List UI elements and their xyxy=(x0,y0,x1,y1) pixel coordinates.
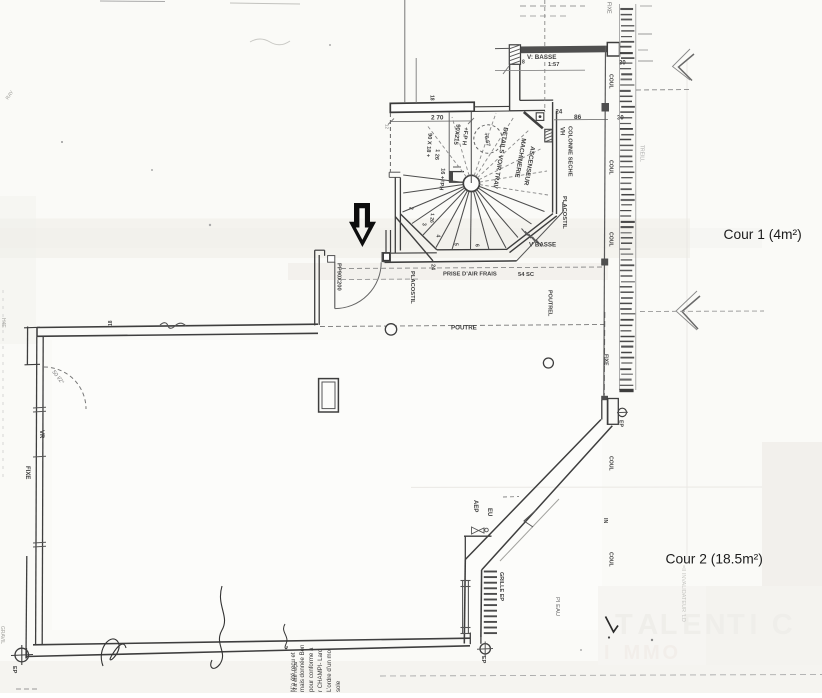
svg-text:8: 8 xyxy=(522,60,525,66)
svg-text:=II INVALIDATEUR ’LD: =II INVALIDATEUR ’LD xyxy=(680,565,686,622)
svg-text:FIXE: FIXE xyxy=(24,466,30,479)
svg-text:1 26: 1 26 xyxy=(433,149,440,160)
svg-text:COUL: COUL xyxy=(608,232,614,248)
svg-text:1 26: 1 26 xyxy=(428,213,435,223)
svg-text:COUL: COUL xyxy=(608,552,614,568)
svg-text:r CHAMPI- Lard: r CHAMPI- Lard xyxy=(317,649,324,692)
svg-text:PI EAU: PI EAU xyxy=(554,597,560,616)
svg-text:24: 24 xyxy=(556,110,563,116)
svg-text:COLONNE SECHE: COLONNE SECHE xyxy=(567,126,573,177)
svg-text:54 SC: 54 SC xyxy=(518,272,535,278)
svg-text:N’a été reçu: N’a été reçu xyxy=(293,662,299,692)
svg-text:1:57: 1:57 xyxy=(548,62,559,68)
svg-text:30: 30 xyxy=(617,116,624,122)
svg-text:L’ordre d’un mo: L’ordre d’un mo xyxy=(326,649,333,692)
svg-text:18: 18 xyxy=(429,95,435,101)
svg-text:AEP: AEP xyxy=(472,500,478,512)
svg-text:3: 3 xyxy=(421,223,427,226)
svg-text:L: L xyxy=(660,609,678,641)
svg-text:I: I xyxy=(749,609,757,641)
svg-text:A: A xyxy=(637,609,658,641)
svg-text:GRAVIL: GRAVIL xyxy=(0,626,5,644)
svg-text:5: 5 xyxy=(453,243,459,246)
svg-text:EU: EU xyxy=(486,508,492,516)
svg-text:sole: sole xyxy=(335,680,342,692)
svg-text:PLACOSTIL: PLACOSTIL xyxy=(561,196,567,229)
svg-text:4: 4 xyxy=(435,235,441,238)
svg-text:86: 86 xyxy=(574,114,582,121)
svg-text:O: O xyxy=(663,642,679,664)
svg-text:EP: EP xyxy=(11,666,17,674)
svg-text:COUL: COUL xyxy=(608,160,614,176)
svg-text:mais donnée Bon: mais donnée Bon xyxy=(299,645,306,692)
svg-text:M: M xyxy=(643,642,660,664)
svg-text:H4E: H4E xyxy=(0,318,6,328)
svg-text:IN: IN xyxy=(602,518,608,523)
svg-text:I: I xyxy=(604,642,610,664)
svg-text:M: M xyxy=(624,642,641,664)
svg-text:2: 2 xyxy=(408,207,414,210)
svg-text:POUTREL: POUTREL xyxy=(547,290,553,317)
svg-text:N: N xyxy=(705,609,726,641)
svg-text:PRISE D’AIR FRAIS: PRISE D’AIR FRAIS xyxy=(443,272,497,278)
svg-text:COUL: COUL xyxy=(608,456,614,472)
svg-text:EP: EP xyxy=(618,420,624,427)
svg-text:FIXE: FIXE xyxy=(603,354,609,366)
svg-text:12: 12 xyxy=(385,124,390,130)
svg-text:COUL: COUL xyxy=(608,74,614,90)
svg-text:T: T xyxy=(727,609,745,641)
svg-text:C: C xyxy=(772,609,793,641)
svg-text:PP90X200: PP90X200 xyxy=(336,263,342,291)
svg-text:6: 6 xyxy=(474,244,480,247)
svg-text:TREILL: TREILL xyxy=(639,145,645,162)
svg-text:PLACOSTIL: PLACOSTIL xyxy=(409,271,415,304)
svg-text:VH: VH xyxy=(559,127,565,135)
svg-text:24: 24 xyxy=(430,264,436,271)
svg-text:18: 18 xyxy=(108,320,114,326)
svg-text:GRILLE EP: GRILLE EP xyxy=(498,572,504,601)
svg-text:Cour 2 (18.5m²): Cour 2 (18.5m²) xyxy=(666,552,763,567)
svg-text:EP: EP xyxy=(480,656,486,664)
svg-text:VR: VR xyxy=(38,430,44,439)
svg-text:V BASSE: V BASSE xyxy=(529,242,556,249)
svg-text:pour conforme à: pour conforme à xyxy=(308,647,315,692)
svg-text:V: BASSE: V: BASSE xyxy=(527,54,556,61)
svg-text:2 70: 2 70 xyxy=(431,114,444,121)
svg-text:Cour 1 (4m²): Cour 1 (4m²) xyxy=(724,227,802,242)
svg-text:FIXE: FIXE xyxy=(606,2,612,14)
svg-text:POUTRE: POUTRE xyxy=(451,325,477,332)
svg-text:T: T xyxy=(615,609,633,641)
